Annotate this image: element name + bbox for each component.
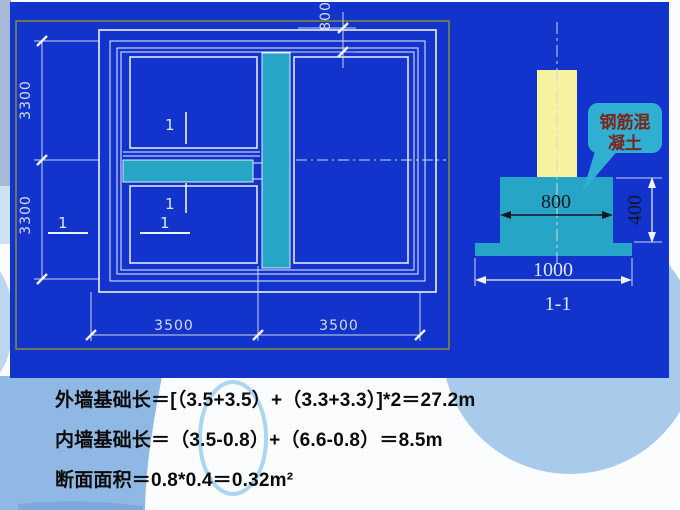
drawing-panel — [10, 2, 669, 378]
decor-bottom-left-arc — [18, 501, 143, 510]
calc-line-section-area: 断面面积＝0.8*0.4＝0.32m² — [55, 461, 655, 501]
slide: 1 1 1 1 3300 3300 — [0, 0, 680, 510]
calc-line-outer-wall: 外墙基础长＝[（3.5+3.5）+（3.3+3.3）]*2＝27.2m — [55, 381, 655, 421]
calculations: 外墙基础长＝[（3.5+3.5）+（3.3+3.3）]*2＝27.2m 内墙基础… — [55, 381, 655, 501]
calc-line-inner-wall: 内墙基础长＝（3.5-0.8）+（6.6-0.8）＝8.5m — [55, 421, 655, 461]
